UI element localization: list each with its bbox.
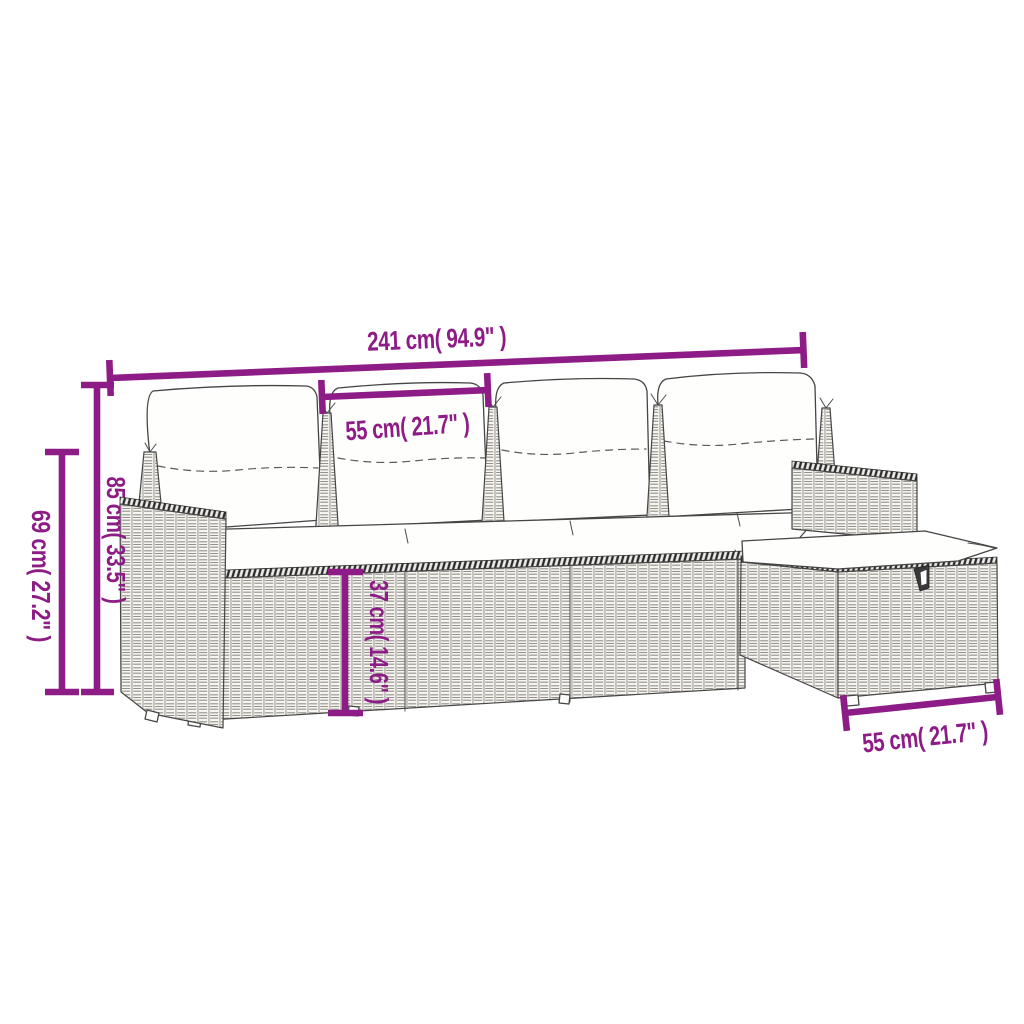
dimension-height-69: 69 cm( 27.2" ) [26, 452, 79, 692]
dimension-tick [487, 373, 488, 407]
product-dimension-diagram: 241 cm( 94.9" ) 55 cm( 21.7" ) 69 cm( 27… [0, 0, 1024, 1024]
dimension-tick [996, 679, 1000, 715]
dimension-tick [321, 380, 322, 414]
sofa-illustration [120, 373, 998, 728]
ottoman-left-face [740, 562, 838, 698]
diagram-canvas: 241 cm( 94.9" ) 55 cm( 21.7" ) 69 cm( 27… [0, 0, 1024, 1024]
base-foot-3 [559, 694, 570, 704]
ottoman-foot-1 [846, 695, 859, 706]
left-armrest-front-face [120, 504, 226, 728]
back-pillow-2 [330, 383, 488, 528]
dimension-label-overall-width: 241 cm( 94.9" ) [367, 321, 507, 357]
dimension-line [845, 697, 998, 713]
ottoman-handle-slot [920, 569, 927, 586]
dimension-label-height-37: 37 cm( 14.6" ) [364, 580, 394, 704]
dimension-line [110, 350, 803, 378]
left-armrest [120, 497, 226, 728]
dimension-label-height-69: 69 cm( 27.2" ) [26, 510, 56, 642]
ottoman [740, 531, 998, 706]
dimension-tick [803, 332, 804, 368]
dimension-tick [109, 360, 110, 396]
dimension-label-height-85: 85 cm( 33.5" ) [101, 477, 131, 604]
right-armrest-front-face [792, 468, 917, 541]
sofa-base [188, 551, 745, 727]
back-pillow-3 [496, 379, 650, 523]
dimension-tick [843, 695, 847, 731]
dimension-label-ottoman-width: 55 cm( 21.7" ) [861, 716, 989, 759]
base-front-face [192, 559, 745, 721]
right-armrest [792, 461, 917, 541]
